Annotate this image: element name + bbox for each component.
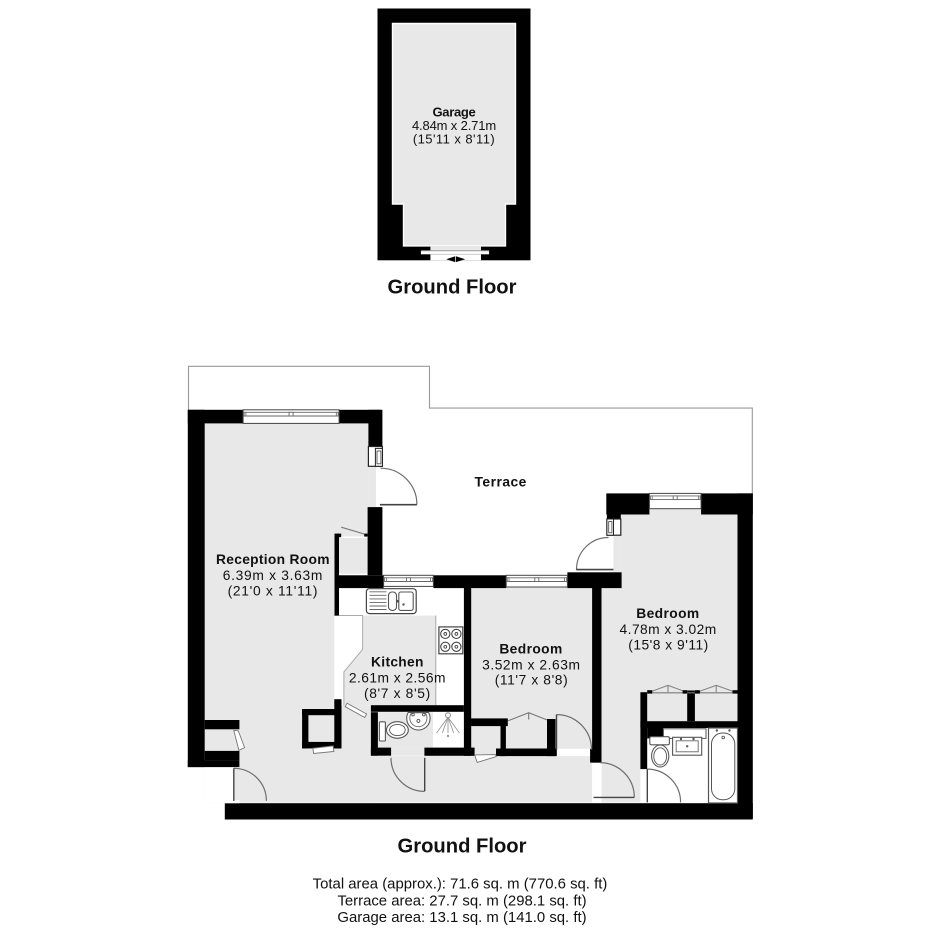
svg-text:Kitchen: Kitchen [371, 654, 424, 669]
svg-text:3.52m x 2.63m: 3.52m x 2.63m [482, 658, 580, 673]
svg-text:Bedroom: Bedroom [499, 641, 562, 656]
svg-text:Bedroom: Bedroom [636, 606, 699, 621]
svg-text:Ground Floor: Ground Floor [388, 277, 517, 299]
svg-text:(11'7 x 8'8): (11'7 x 8'8) [495, 673, 569, 688]
svg-text:4.78m x 3.02m: 4.78m x 3.02m [620, 622, 717, 637]
svg-text:Total area (approx.): 71.6 sq.: Total area (approx.): 71.6 sq. m (770.6 … [313, 877, 608, 893]
svg-text:Ground Floor: Ground Floor [398, 835, 527, 857]
svg-text:Terrace: Terrace [475, 475, 527, 490]
svg-text:(8'7 x 8'5): (8'7 x 8'5) [364, 686, 431, 701]
svg-text:2.61m x 2.56m: 2.61m x 2.56m [349, 671, 446, 686]
svg-text:(15'8 x 9'11): (15'8 x 9'11) [628, 638, 709, 653]
svg-text:Garage area: 13.1 sq. m (141.0: Garage area: 13.1 sq. m (141.0 sq. ft) [337, 910, 586, 926]
svg-text:6.39m x 3.63m: 6.39m x 3.63m [223, 568, 323, 583]
svg-text:(15'11 x 8'11): (15'11 x 8'11) [413, 132, 495, 147]
svg-text:Reception Room: Reception Room [216, 552, 330, 567]
svg-text:Terrace area: 27.7 sq. m (298.: Terrace area: 27.7 sq. m (298.1 sq. ft) [337, 894, 586, 910]
svg-text:(21'0 x 11'11): (21'0 x 11'11) [228, 584, 319, 599]
